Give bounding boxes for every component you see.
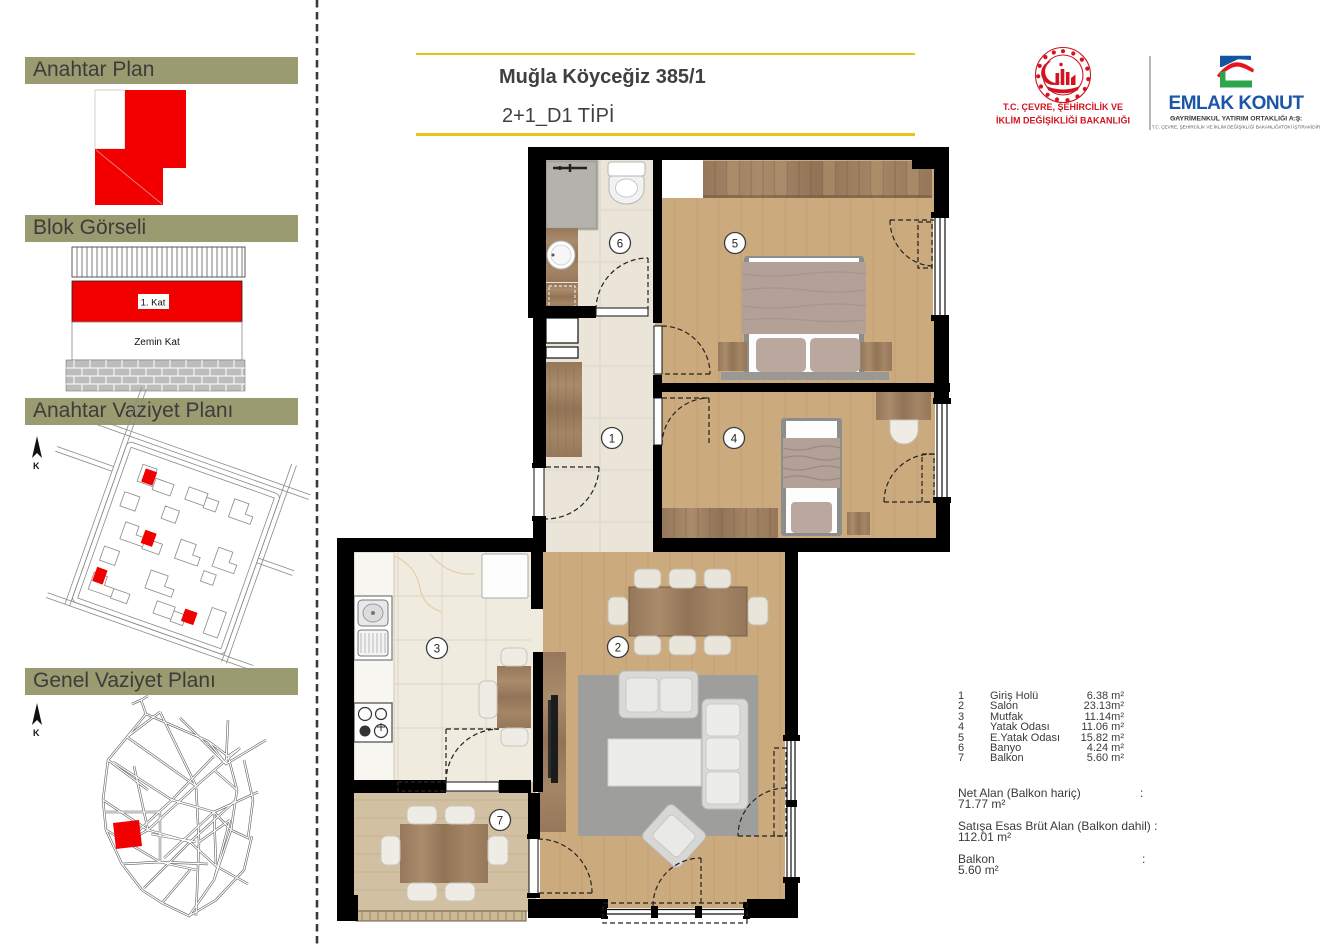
svg-text:1: 1 xyxy=(609,434,615,446)
svg-text:T.C. ÇEVRE, ŞEHİRCİLİK VE İKLİ: T.C. ÇEVRE, ŞEHİRCİLİK VE İKLİM DEĞİŞİKL… xyxy=(1152,124,1321,130)
svg-text:3: 3 xyxy=(434,644,440,656)
svg-text:EMLAK KONUT: EMLAK KONUT xyxy=(1169,93,1305,114)
svg-text:5: 5 xyxy=(732,239,738,251)
svg-text:7: 7 xyxy=(497,816,503,828)
svg-text:GAYRİMENKUL YATIRIM ORTAKLIĞI: GAYRİMENKUL YATIRIM ORTAKLIĞI A.Ş. xyxy=(1170,114,1302,123)
svg-text:Zemin Kat: Zemin Kat xyxy=(134,337,180,348)
svg-text:K: K xyxy=(33,728,40,738)
svg-text:K: K xyxy=(33,461,40,471)
svg-text:6: 6 xyxy=(617,239,623,251)
svg-text:2: 2 xyxy=(615,643,621,655)
svg-text:T.C. ÇEVRE, ŞEHİRCİLİK VE: T.C. ÇEVRE, ŞEHİRCİLİK VE xyxy=(1003,102,1123,112)
svg-text:1. Kat: 1. Kat xyxy=(141,298,166,309)
svg-text:İKLİM DEĞİŞİKLİĞİ BAKANLIĞI: İKLİM DEĞİŞİKLİĞİ BAKANLIĞI xyxy=(996,115,1130,126)
svg-text:4: 4 xyxy=(731,434,738,446)
